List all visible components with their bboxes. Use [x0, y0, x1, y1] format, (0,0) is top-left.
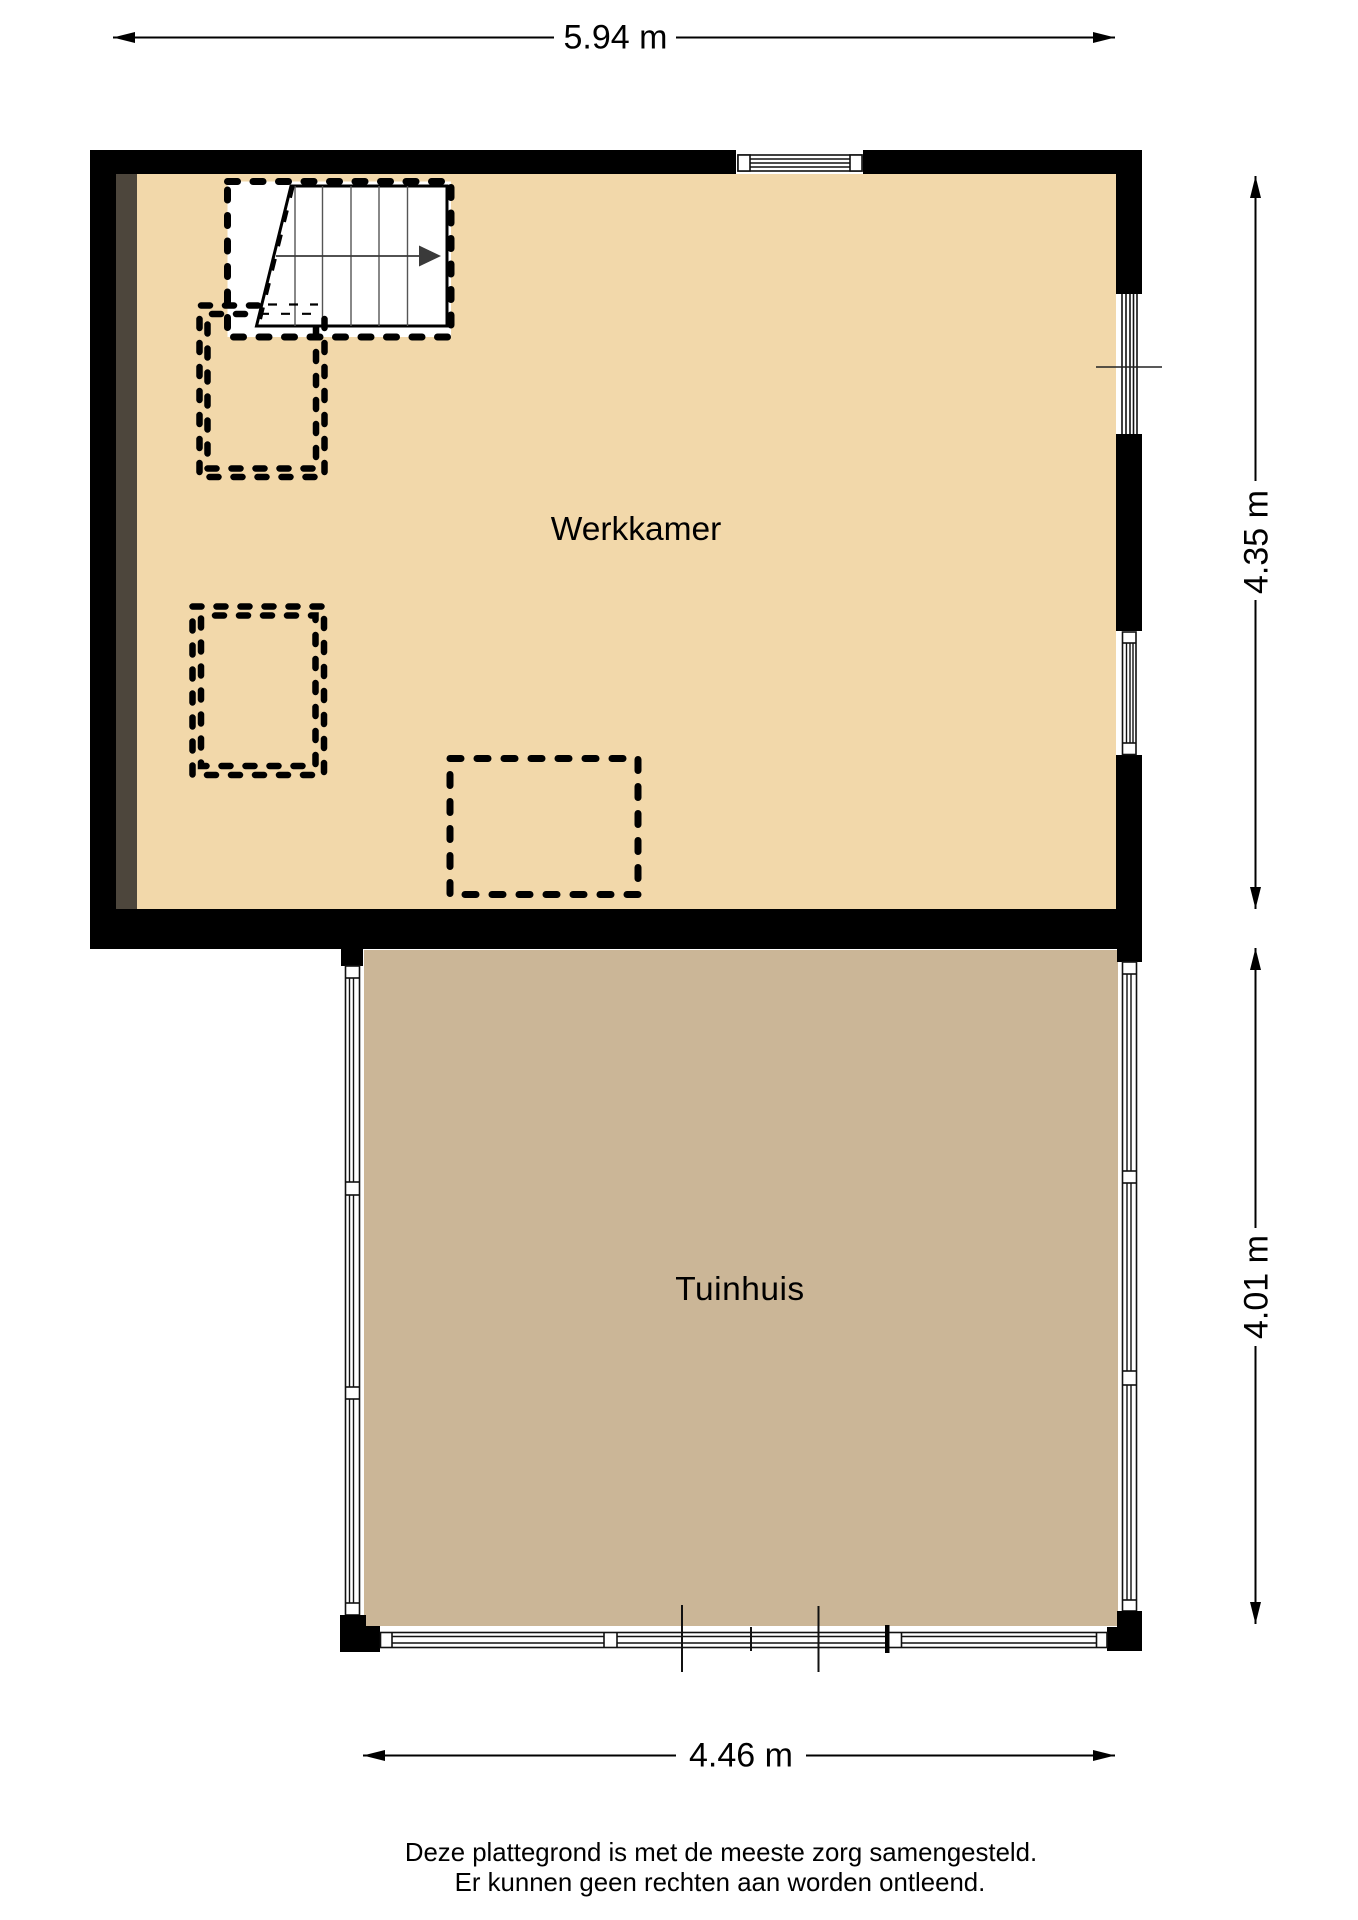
svg-text:5.94 m: 5.94 m [564, 19, 668, 57]
svg-text:4.35 m: 4.35 m [1238, 490, 1276, 594]
svg-text:Deze plattegrond is met de mee: Deze plattegrond is met de meeste zorg s… [405, 1839, 1037, 1867]
svg-text:4.01 m: 4.01 m [1238, 1235, 1276, 1339]
svg-text:4.46 m: 4.46 m [689, 1737, 793, 1775]
svg-text:Tuinhuis: Tuinhuis [675, 1271, 804, 1308]
svg-text:Er kunnen geen rechten aan wor: Er kunnen geen rechten aan worden ontlee… [455, 1869, 986, 1897]
svg-text:Werkkamer: Werkkamer [551, 511, 722, 548]
